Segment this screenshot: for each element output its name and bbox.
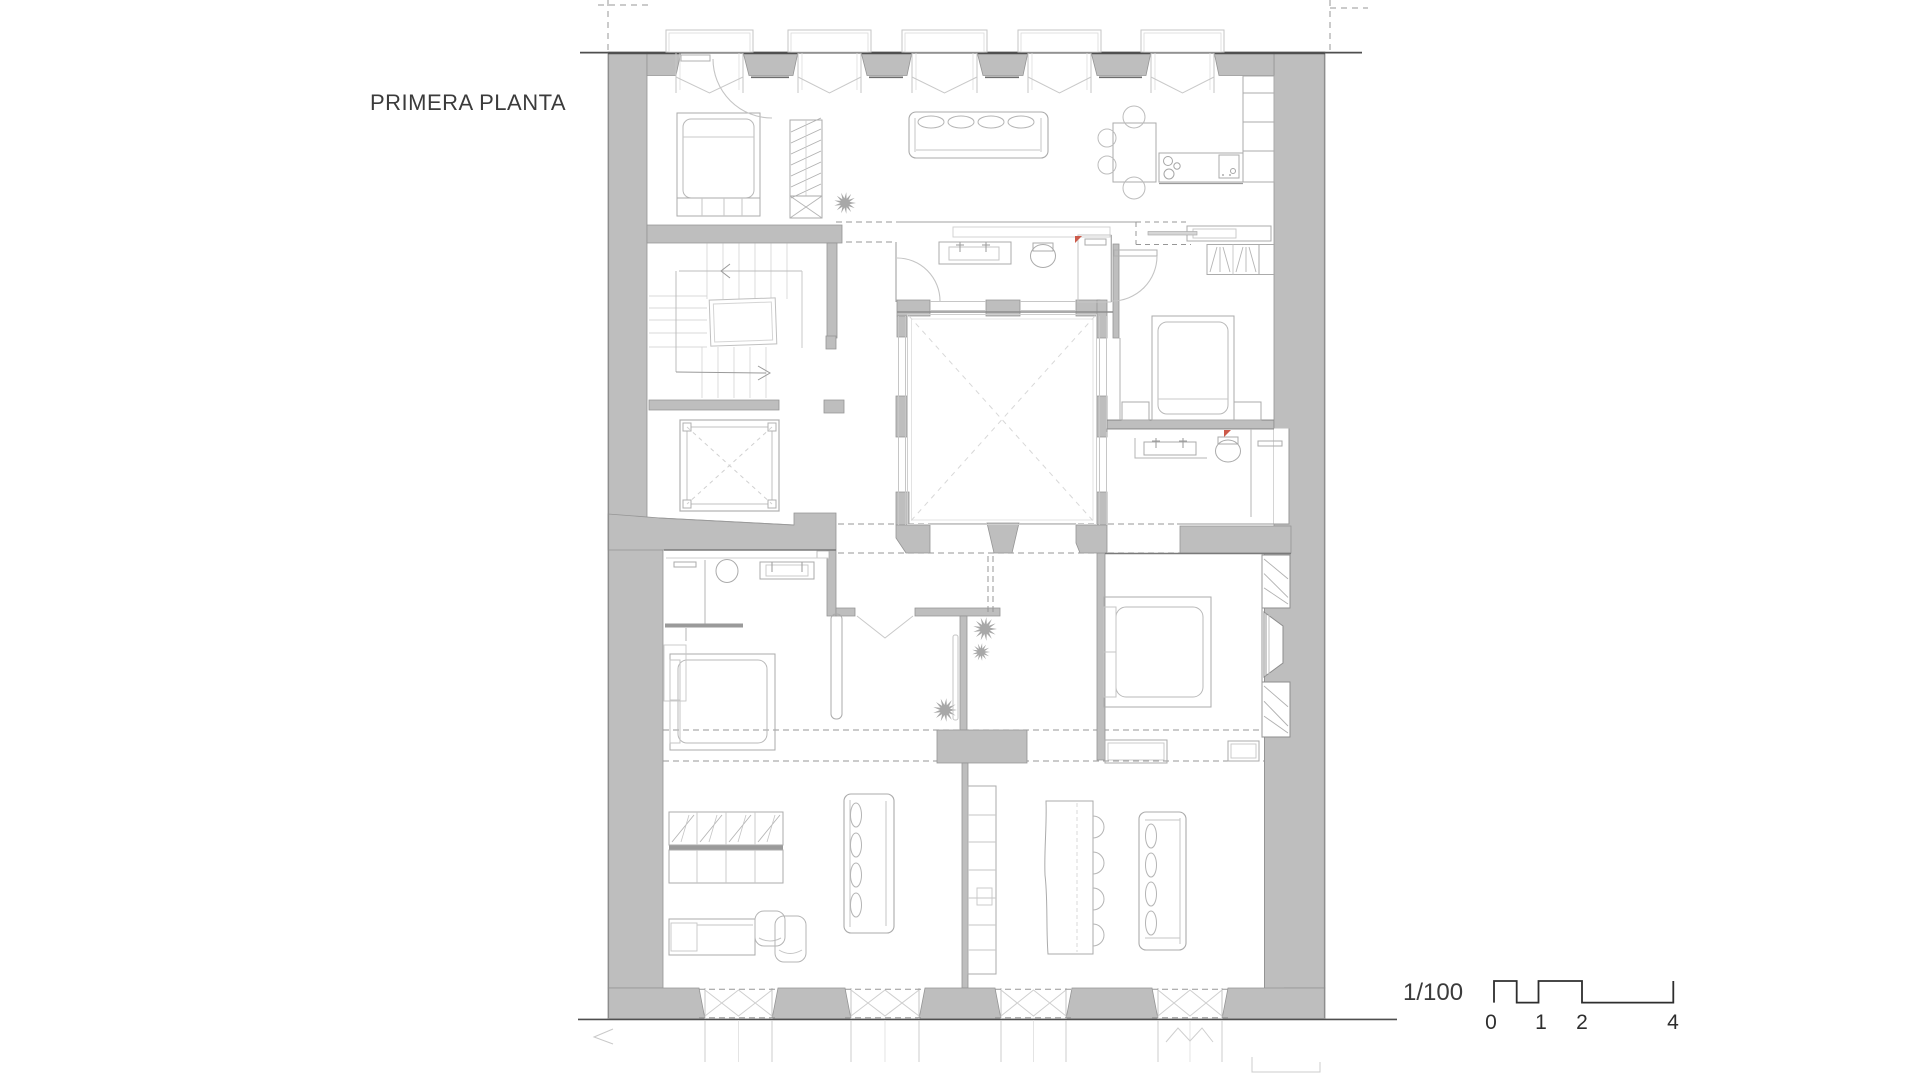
- svg-text:1: 1: [1535, 1011, 1547, 1034]
- svg-text:4: 4: [1667, 1011, 1679, 1034]
- svg-text:1/100: 1/100: [1403, 979, 1463, 1006]
- svg-text:0: 0: [1485, 1011, 1497, 1034]
- svg-text:PRIMERA PLANTA: PRIMERA PLANTA: [370, 90, 566, 115]
- svg-text:2: 2: [1576, 1011, 1588, 1034]
